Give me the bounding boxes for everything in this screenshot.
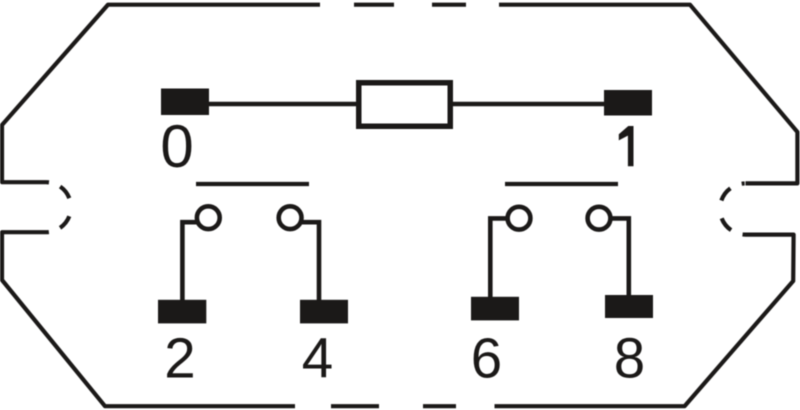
svg-text:6: 6 <box>471 327 502 390</box>
svg-text:2: 2 <box>164 327 195 390</box>
svg-text:0: 0 <box>160 113 193 180</box>
svg-text:8: 8 <box>614 327 645 390</box>
svg-text:4: 4 <box>302 327 333 390</box>
